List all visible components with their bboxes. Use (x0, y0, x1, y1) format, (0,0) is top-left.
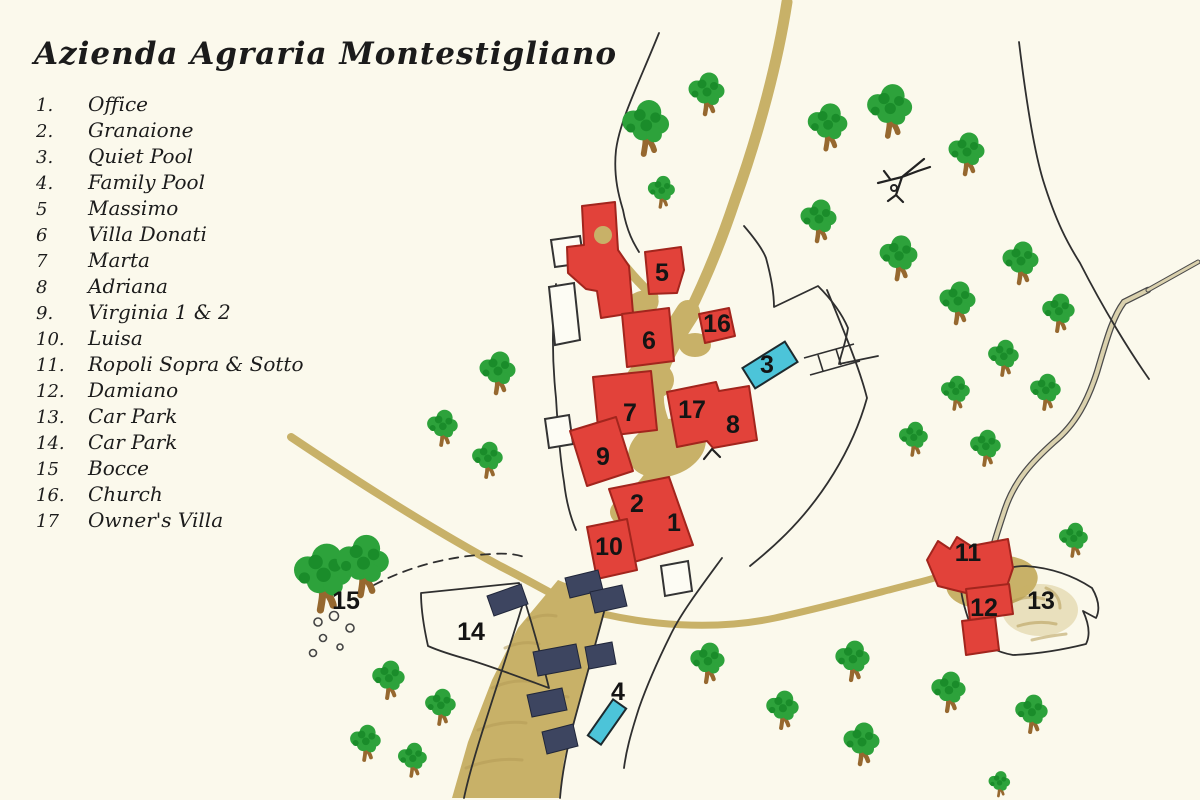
legend-item-label: Quiet Pool (88, 144, 193, 168)
legend-item-number: 1. (36, 95, 88, 116)
legend-item: 17 Owner's Villa (36, 508, 304, 534)
tree-icon (1042, 294, 1074, 331)
legend-item-number: 17 (36, 511, 88, 532)
tree-icon (398, 743, 427, 776)
tree-icon (350, 725, 381, 760)
tree-icon (1059, 523, 1088, 556)
legend-item: 4. Family Pool (36, 170, 304, 196)
legend-item-number: 3. (36, 147, 88, 168)
field-boundary (750, 290, 867, 566)
legend-item: 13. Car Park (36, 404, 304, 430)
car-icon (585, 642, 616, 669)
legend-item-label: Granaione (88, 118, 193, 142)
map-label-7: 7 (623, 399, 637, 427)
tree-icon (1003, 242, 1039, 284)
legend-item-label: Ropoli Sopra & Sotto (88, 352, 304, 376)
legend-item: 16. Church (36, 482, 304, 508)
field-boundaries (374, 33, 1149, 798)
tree-icon (1030, 374, 1061, 409)
north-arrow-mark (704, 449, 720, 459)
legend-item-number: 7 (36, 251, 88, 272)
legend-item: 5 Massimo (36, 196, 304, 222)
main-road-north (688, 2, 787, 315)
legend-item-label: Damiano (88, 378, 178, 402)
legend-item-label: Massimo (88, 196, 178, 220)
tree-icon (941, 376, 970, 409)
map-label-14: 14 (457, 618, 485, 646)
tree-icon (472, 442, 503, 477)
bocce-balls-icon (310, 612, 355, 657)
dead-tree-icon (878, 159, 930, 202)
map-label-16: 16 (703, 310, 731, 338)
tree-icon (988, 340, 1019, 375)
tree-icon (622, 100, 669, 154)
legend-item: 14. Car Park (36, 430, 304, 456)
legend-item-number: 14. (36, 433, 88, 454)
legend-item-label: Adriana (88, 274, 168, 298)
white-building (661, 561, 692, 596)
tree-icon (808, 103, 848, 149)
white-building (545, 415, 573, 448)
legend-item-number: 13. (36, 407, 88, 428)
estate-map-page: 1234567891011121314151617 Azienda Agrari… (0, 0, 1200, 800)
tree-icon (1015, 695, 1047, 732)
tree-icon (480, 352, 516, 394)
building-granaione-complex (567, 202, 633, 318)
tree-icon (427, 410, 458, 445)
legend-item-label: Car Park (88, 404, 177, 428)
legend-item-label: Marta (88, 248, 150, 272)
legend-item-label: Family Pool (88, 170, 205, 194)
map-label-8: 8 (726, 411, 740, 439)
tree-icon (844, 723, 880, 765)
family-pool (588, 699, 626, 744)
legend-item: 1. Office (36, 92, 304, 118)
legend-item: 10. Luisa (36, 326, 304, 352)
tree-icon (970, 430, 1001, 465)
tree-icon (372, 661, 404, 698)
legend-item-label: Church (88, 482, 163, 506)
tree-icon (949, 133, 985, 175)
map-label-4: 4 (611, 678, 625, 706)
map-label-6: 6 (642, 327, 656, 355)
tree-icon (801, 200, 837, 242)
tree-icon (931, 672, 965, 711)
map-label-12: 12 (970, 594, 998, 622)
tree-icon (337, 535, 389, 595)
white-building (549, 283, 580, 345)
legend-item-number: 5 (36, 199, 88, 220)
map-label-13: 13 (1027, 587, 1055, 615)
map-label-15: 15 (332, 587, 360, 615)
map-label-3: 3 (760, 351, 774, 379)
legend-item-number: 16. (36, 485, 88, 506)
legend-item: 8 Adriana (36, 274, 304, 300)
map-number-labels: 1234567891011121314151617 (332, 259, 1055, 706)
east-road (572, 568, 960, 625)
legend-item-label: Luisa (88, 326, 143, 350)
map-label-5: 5 (655, 259, 669, 287)
tree-icon (940, 282, 976, 324)
map-label-1: 1 (667, 509, 681, 537)
tree-icon (690, 643, 724, 682)
tree-icon (425, 689, 456, 724)
tree-icon (835, 641, 869, 680)
northeast-lane (988, 290, 1148, 566)
legend-item-number: 4. (36, 173, 88, 194)
legend-item-number: 15 (36, 459, 88, 480)
legend-item-number: 6 (36, 225, 88, 246)
tree-icon (648, 176, 675, 207)
legend-item-number: 12. (36, 381, 88, 402)
courtyard-dot (594, 226, 612, 244)
legend-item-label: Virginia 1 & 2 (88, 300, 231, 324)
tree-icon (766, 691, 798, 728)
field-boundary (744, 226, 878, 364)
map-label-10: 10 (595, 533, 623, 561)
legend-item: 9. Virginia 1 & 2 (36, 300, 304, 326)
legend-item-label: Car Park (88, 430, 177, 454)
page-title: Azienda Agraria Montestigliano (34, 36, 617, 72)
legend-item: 7 Marta (36, 248, 304, 274)
legend-list: 1. Office 2. Granaione 3. Quiet Pool 4. … (36, 92, 304, 534)
building-damiano-lower (962, 617, 999, 655)
legend-item-label: Bocce (88, 456, 149, 480)
legend-item: 15 Bocce (36, 456, 304, 482)
legend-item-number: 8 (36, 277, 88, 298)
legend-item-number: 2. (36, 121, 88, 142)
map-label-11: 11 (955, 539, 982, 567)
field-boundary (1019, 42, 1149, 379)
tree-icon (880, 235, 918, 279)
car-icon (487, 584, 528, 616)
legend-item: 11. Ropoli Sopra & Sotto (36, 352, 304, 378)
legend-item-label: Office (88, 92, 148, 116)
map-label-9: 9 (596, 443, 610, 471)
legend-item: 6 Villa Donati (36, 222, 304, 248)
legend-item-label: Villa Donati (88, 222, 207, 246)
legend-item: 12. Damiano (36, 378, 304, 404)
tree-icon (899, 422, 928, 455)
tree-icon (867, 84, 912, 136)
legend-item: 3. Quiet Pool (36, 144, 304, 170)
map-label-2: 2 (630, 490, 644, 518)
tree-icon (689, 73, 725, 115)
tree-icon (989, 771, 1011, 796)
map-label-17: 17 (678, 396, 706, 424)
legend-item-number: 9. (36, 303, 88, 324)
legend-item-number: 10. (36, 329, 88, 350)
legend-item: 2. Granaione (36, 118, 304, 144)
northeast-lane-ext (1148, 262, 1198, 290)
legend-item-label: Owner's Villa (88, 508, 223, 532)
legend-item-number: 11. (36, 355, 88, 376)
